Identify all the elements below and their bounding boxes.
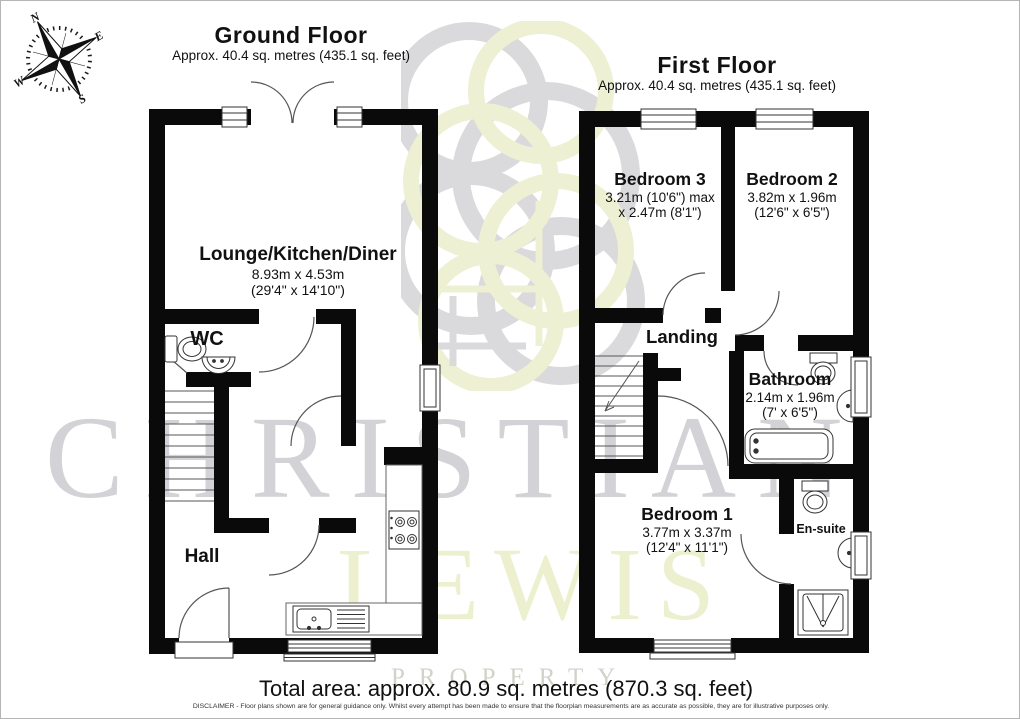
room-label-ensuite: En-suite xyxy=(796,522,845,536)
cupboard-door-arc xyxy=(291,396,341,446)
bedroom1-door-arc xyxy=(658,396,728,466)
window xyxy=(641,109,696,129)
ground-floor-plan xyxy=(149,82,440,661)
toilet-cistern-icon xyxy=(802,481,828,491)
room-label-lounge: Lounge/Kitchen/Diner 8.93m x 4.53m (29'4… xyxy=(199,244,396,298)
window xyxy=(337,107,362,127)
staircase-ground xyxy=(165,391,214,501)
front-door-arc xyxy=(179,588,229,638)
lounge-door-arc xyxy=(269,525,319,575)
hob-icon xyxy=(389,511,419,549)
first-floor-title: First Floor xyxy=(657,52,776,79)
ensuite-door-arc xyxy=(741,534,791,584)
toilet-cistern-icon xyxy=(165,336,177,362)
kitchen-fixtures xyxy=(286,465,422,635)
room-label-bedroom1: Bedroom 1 3.77m x 3.37m (12'4" x 11'1") xyxy=(641,504,732,555)
french-door-right-arc xyxy=(293,82,334,123)
bedroom3-door-arc xyxy=(663,273,705,315)
window xyxy=(851,357,871,417)
window xyxy=(851,532,871,579)
room-label-hall: Hall xyxy=(185,546,220,568)
room-label-landing: Landing xyxy=(646,326,718,348)
window xyxy=(284,640,375,661)
toilet-cistern-icon xyxy=(810,353,837,363)
floorplan-drawing xyxy=(1,1,1020,719)
room-label-bedroom2: Bedroom 2 3.82m x 1.96m (12'6" x 6'5") xyxy=(746,169,837,220)
disclaimer-text: DISCLAIMER - Floor plans shown are for g… xyxy=(193,703,829,710)
floorplan-page: CHRISTIAN LEWIS PROPERTY xyxy=(0,0,1020,719)
window xyxy=(650,640,735,659)
room-label-bedroom3: Bedroom 3 3.21m (10'6") max x 2.47m (8'1… xyxy=(605,169,714,220)
front-door-leaf xyxy=(175,642,233,658)
french-door-left-arc xyxy=(251,82,292,123)
ground-floor-subtitle: Approx. 40.4 sq. metres (435.1 sq. feet) xyxy=(172,48,410,63)
bedroom2-door-arc xyxy=(735,291,779,335)
window xyxy=(420,365,440,411)
wc-door-arc xyxy=(259,317,314,372)
window xyxy=(222,107,247,127)
room-label-bathroom: Bathroom 2.14m x 1.96m (7' x 6'5") xyxy=(745,369,834,420)
shower-tray-icon xyxy=(798,590,848,635)
staircase-first xyxy=(595,356,643,456)
window xyxy=(756,109,813,129)
first-floor-subtitle: Approx. 40.4 sq. metres (435.1 sq. feet) xyxy=(598,78,836,93)
room-label-wc: WC xyxy=(190,328,223,351)
ground-floor-title: Ground Floor xyxy=(215,22,368,49)
total-area-text: Total area: approx. 80.9 sq. metres (870… xyxy=(259,676,753,702)
kitchen-sink-icon xyxy=(293,606,369,632)
ensuite-fixtures xyxy=(798,481,853,635)
